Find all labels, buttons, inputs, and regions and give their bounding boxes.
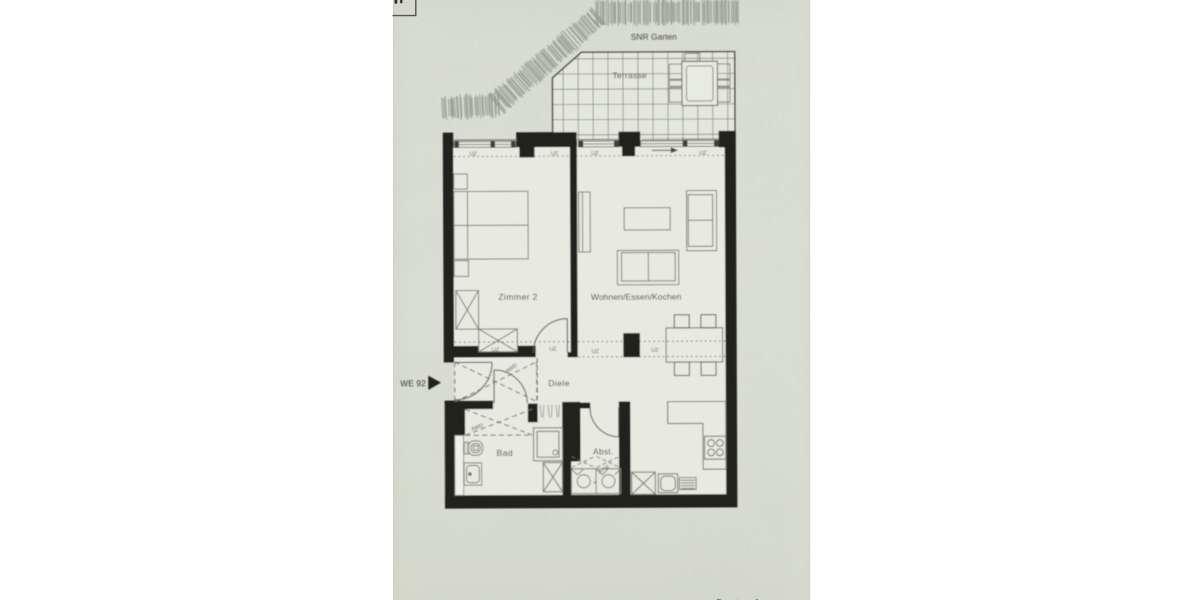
svg-text:UZ: UZ xyxy=(551,151,559,157)
svg-text:UZ: UZ xyxy=(469,151,477,157)
svg-text:WE 92: WE 92 xyxy=(400,378,426,388)
svg-text:UZ: UZ xyxy=(699,150,707,156)
svg-text:Abst.: Abst. xyxy=(593,447,614,456)
svg-text:Terrasse: Terrasse xyxy=(612,70,647,80)
svg-text:UZ: UZ xyxy=(549,347,557,353)
svg-text:Zimmer 2: Zimmer 2 xyxy=(498,292,538,302)
svg-text:UZ: UZ xyxy=(492,347,500,353)
svg-text:Bad: Bad xyxy=(497,448,514,458)
svg-text:Diele: Diele xyxy=(548,378,570,388)
svg-text:UZ: UZ xyxy=(591,151,599,157)
svg-text:UZ: UZ xyxy=(592,349,600,355)
svg-text:Wohnen/Essen/Kochen: Wohnen/Essen/Kochen xyxy=(591,292,682,302)
svg-text:SNR Garten: SNR Garten xyxy=(631,31,677,41)
svg-text:UZ: UZ xyxy=(651,348,659,354)
